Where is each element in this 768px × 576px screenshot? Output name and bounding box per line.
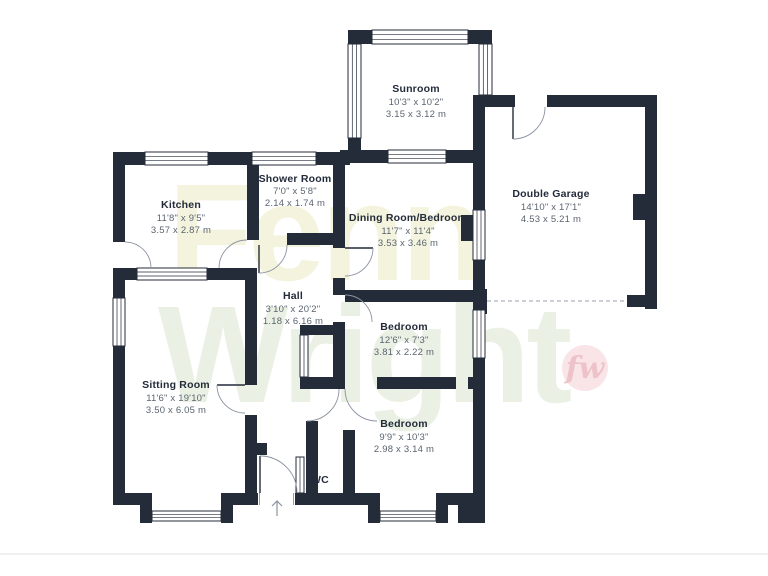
- svg-text:14'10" x 17'1": 14'10" x 17'1": [521, 202, 581, 213]
- floorplan-image: Fenn Wright fw: [0, 0, 768, 576]
- svg-text:7'0" x 5'8": 7'0" x 5'8": [273, 186, 317, 197]
- svg-text:11'8" x 9'5": 11'8" x 9'5": [157, 213, 206, 224]
- svg-text:Double Garage: Double Garage: [512, 188, 589, 200]
- brand-logo: fw: [562, 345, 608, 391]
- svg-text:Dining Room/Bedroom: Dining Room/Bedroom: [349, 212, 467, 224]
- kitchen-hatch: [137, 268, 207, 280]
- sunroom-patio-door: [388, 150, 446, 163]
- svg-text:Shower Room: Shower Room: [259, 173, 332, 185]
- wc-lobby-door: [296, 457, 304, 493]
- logo-monogram: fw: [564, 351, 606, 386]
- svg-text:3.53 x 3.46 m: 3.53 x 3.46 m: [378, 238, 438, 249]
- room-label-sitting-room: Sitting Room 11'6" x 19'10" 3.50 x 6.05 …: [142, 379, 210, 416]
- svg-text:Hall: Hall: [283, 290, 303, 302]
- svg-text:11'6" x 19'10": 11'6" x 19'10": [146, 393, 205, 404]
- svg-text:11'7" x 11'4": 11'7" x 11'4": [381, 226, 434, 237]
- front-door: [260, 456, 298, 505]
- room-label-wc: WC: [311, 474, 329, 486]
- svg-text:WC: WC: [311, 474, 329, 486]
- kitchen-side-door: [125, 242, 151, 268]
- svg-text:10'3" x 10'2": 10'3" x 10'2": [389, 97, 444, 108]
- entrance-arrow-icon: [272, 501, 282, 516]
- svg-text:Kitchen: Kitchen: [161, 199, 201, 211]
- sunroom-window-left: [348, 44, 361, 138]
- sunroom-window-right: [479, 44, 492, 95]
- svg-text:3'10" x 20'2": 3'10" x 20'2": [266, 304, 321, 315]
- room-label-bedroom-bottom: Bedroom 9'9" x 10'3" 2.98 x 3.14 m: [374, 418, 434, 455]
- floorplan-svg: Fenn Wright fw: [0, 0, 768, 576]
- svg-text:2.98 x 3.14 m: 2.98 x 3.14 m: [374, 444, 434, 455]
- svg-text:2.14 x 1.74 m: 2.14 x 1.74 m: [265, 198, 325, 209]
- bedroom-middle-window: [473, 310, 485, 358]
- garage-door: [513, 107, 545, 139]
- svg-text:12'6" x 7'3": 12'6" x 7'3": [379, 335, 428, 346]
- svg-text:4.53 x 5.21 m: 4.53 x 5.21 m: [521, 214, 581, 225]
- kitchen-window: [145, 152, 208, 165]
- svg-text:3.15 x 3.12 m: 3.15 x 3.12 m: [386, 109, 446, 120]
- svg-text:1.18 x 6.16 m: 1.18 x 6.16 m: [263, 316, 323, 327]
- svg-text:3.57 x 2.87 m: 3.57 x 2.87 m: [151, 225, 211, 236]
- sitting-room-bay-window: [152, 511, 221, 521]
- svg-text:Bedroom: Bedroom: [380, 321, 428, 333]
- svg-text:3.81 x 2.22 m: 3.81 x 2.22 m: [374, 347, 434, 358]
- svg-text:3.50 x 6.05 m: 3.50 x 6.05 m: [146, 405, 206, 416]
- svg-text:Sunroom: Sunroom: [392, 83, 439, 95]
- svg-text:9'9" x 10'3": 9'9" x 10'3": [379, 432, 428, 443]
- room-label-double-garage: Double Garage 14'10" x 17'1" 4.53 x 5.21…: [512, 188, 589, 225]
- bedroom-bottom-bay-window: [380, 511, 436, 521]
- sunroom-window-top: [372, 30, 468, 44]
- room-label-bedroom-middle: Bedroom 12'6" x 7'3" 3.81 x 2.22 m: [374, 321, 434, 358]
- shower-room-window: [252, 152, 316, 165]
- room-label-sunroom: Sunroom 10'3" x 10'2" 3.15 x 3.12 m: [386, 83, 446, 120]
- svg-text:Sitting Room: Sitting Room: [142, 379, 210, 391]
- dining-room-window: [473, 210, 485, 260]
- hall-cupboard-door: [300, 335, 308, 377]
- sitting-room-side-window: [113, 298, 125, 346]
- svg-text:Bedroom: Bedroom: [380, 418, 428, 430]
